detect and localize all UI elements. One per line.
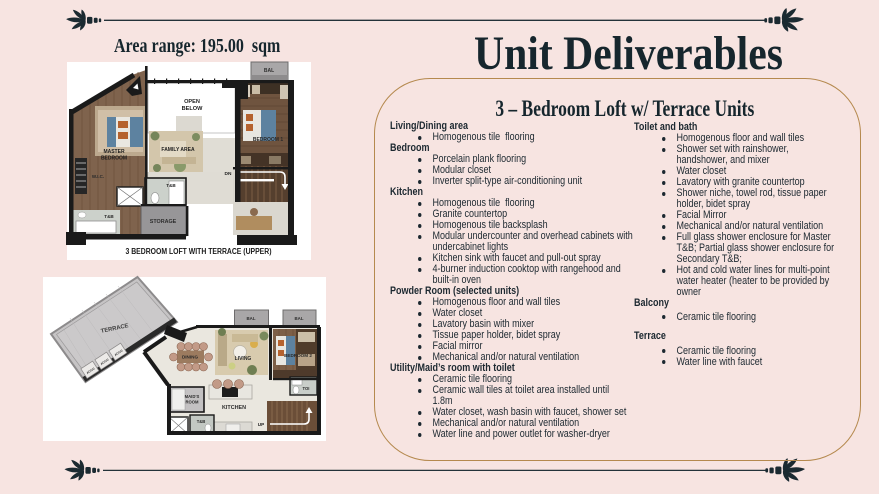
svg-text:BEDROOM: BEDROOM (101, 156, 127, 162)
svg-text:FAMILY AREA: FAMILY AREA (161, 147, 195, 153)
svg-text:BELOW: BELOW (182, 106, 204, 112)
svg-text:BEDROOM 2: BEDROOM 2 (284, 353, 312, 358)
svg-text:TOI: TOI (303, 386, 310, 391)
svg-text:UP: UP (258, 422, 264, 427)
svg-text:T&B: T&B (166, 183, 176, 188)
svg-text:3 BEDROOM LOFT WITH TERRACE (U: 3 BEDROOM LOFT WITH TERRACE (UPPER) (126, 247, 272, 256)
svg-text:BAL: BAL (294, 316, 303, 321)
svg-text:T&B: T&B (197, 419, 206, 424)
svg-text:OPEN: OPEN (184, 99, 200, 105)
svg-text:DINING: DINING (182, 355, 199, 360)
svg-text:BAL: BAL (264, 68, 274, 74)
svg-text:STORAGE: STORAGE (150, 219, 177, 225)
svg-text:LIVING: LIVING (235, 356, 252, 362)
svg-text:BEDROOM 1: BEDROOM 1 (253, 137, 284, 143)
svg-text:ROOM: ROOM (185, 400, 199, 405)
svg-text:T&B: T&B (104, 214, 114, 219)
svg-text:W.I.C.: W.I.C. (92, 174, 104, 179)
svg-text:MAID’S: MAID’S (185, 394, 200, 399)
svg-text:MASTER: MASTER (103, 149, 125, 155)
svg-text:BAL: BAL (246, 316, 255, 321)
svg-text:KITCHEN: KITCHEN (222, 405, 246, 411)
svg-text:DN: DN (225, 171, 232, 177)
